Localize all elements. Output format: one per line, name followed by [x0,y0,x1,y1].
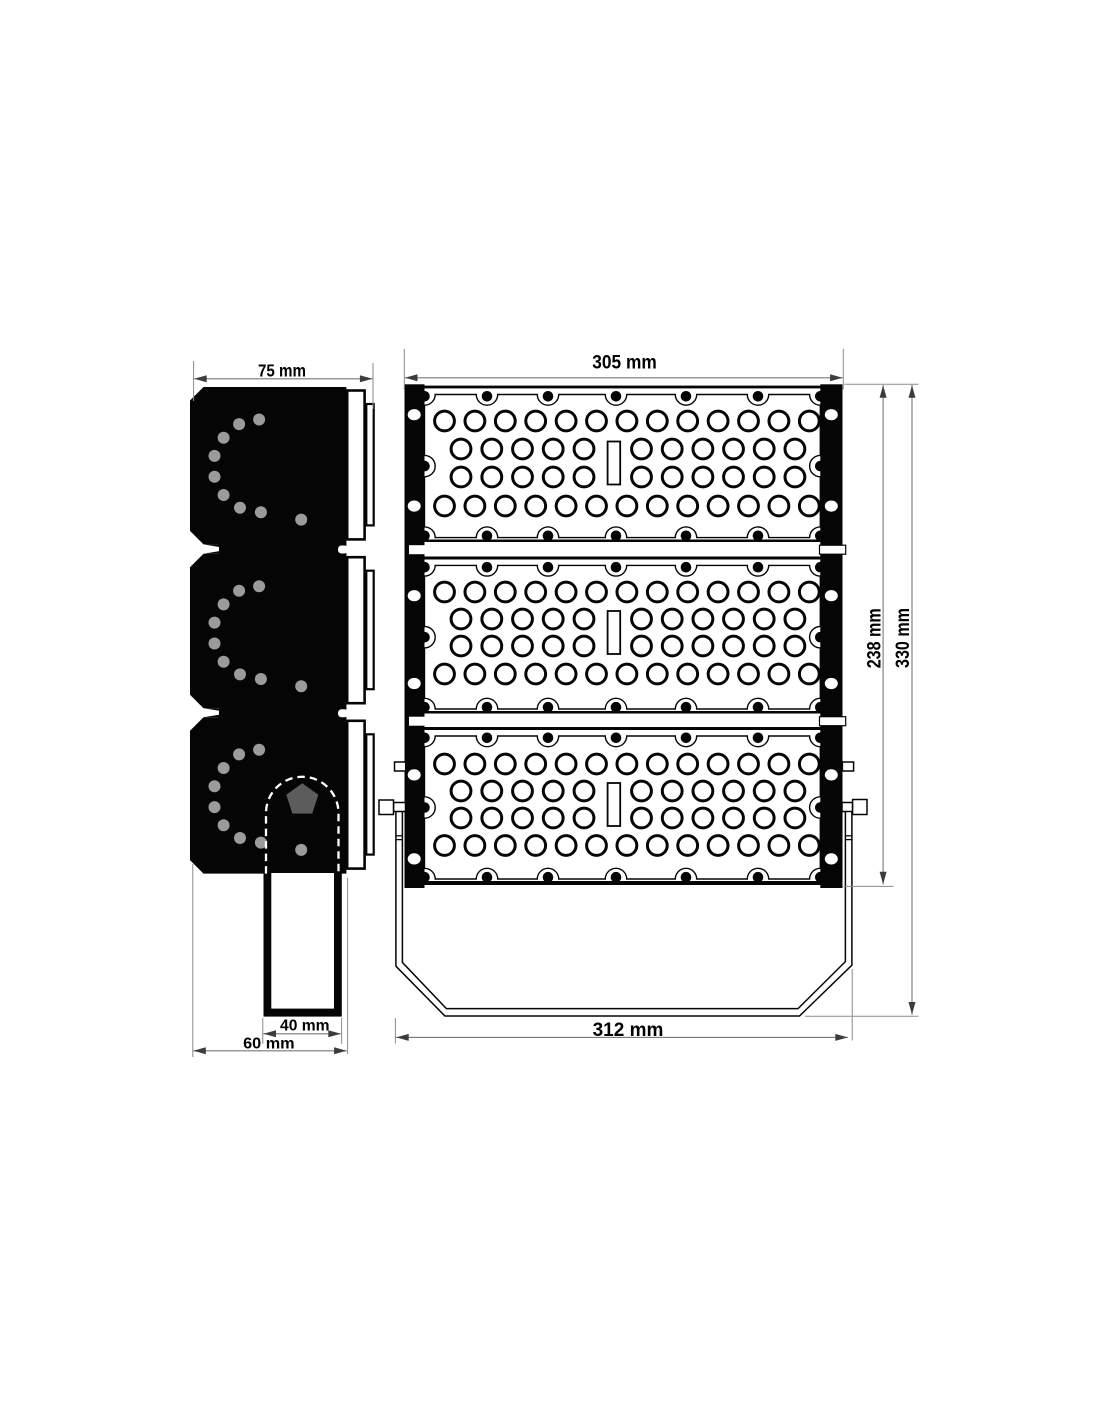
svg-text:75 mm: 75 mm [258,361,306,381]
svg-text:312 mm: 312 mm [593,1020,664,1041]
svg-text:305 mm: 305 mm [592,352,657,374]
svg-text:330 mm: 330 mm [892,608,914,668]
svg-text:238 mm: 238 mm [863,608,885,668]
svg-text:40 mm: 40 mm [280,1018,330,1035]
svg-text:60 mm: 60 mm [243,1035,295,1052]
